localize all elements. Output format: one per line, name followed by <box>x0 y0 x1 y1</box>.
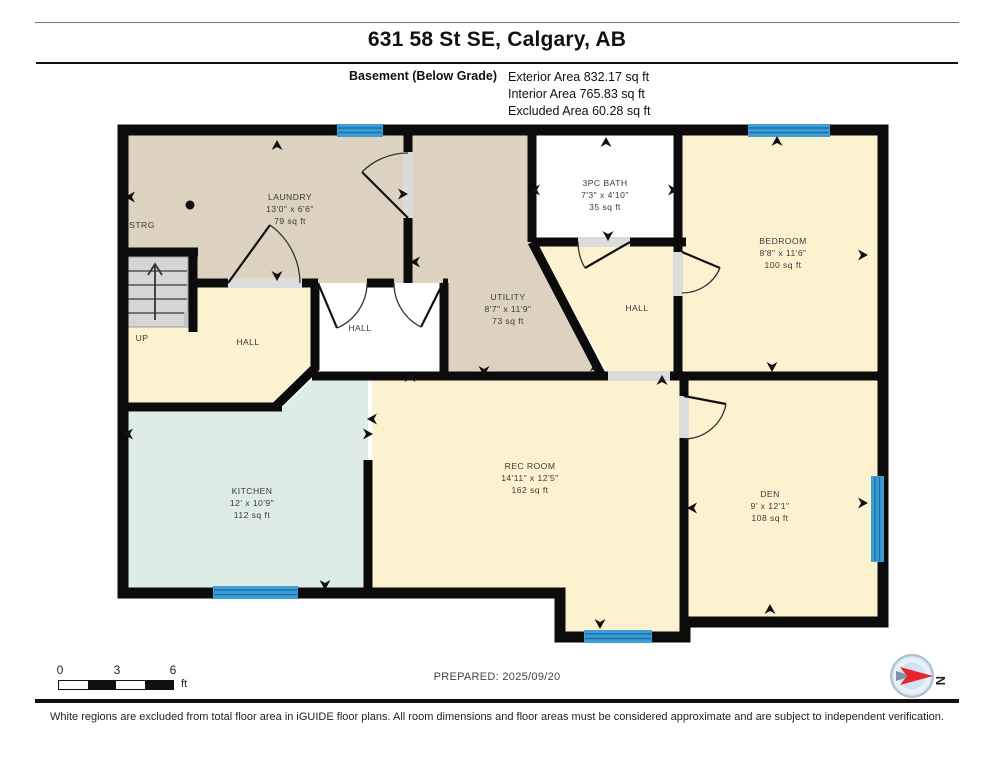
label-kitchen-dims: 12' x 10'9" <box>230 498 274 508</box>
window-bedroom <box>748 124 830 137</box>
stairs <box>123 257 194 327</box>
label-strg: STRG <box>129 220 155 230</box>
label-kitchen-name: KITCHEN <box>232 486 273 496</box>
label-hall-east: HALL <box>625 303 648 313</box>
label-kitchen-area: 112 sq ft <box>234 510 271 520</box>
label-bath-area: 35 sq ft <box>589 202 621 212</box>
room-fills <box>128 134 878 632</box>
label-utility-area: 73 sq ft <box>492 316 524 326</box>
window-den <box>871 476 884 562</box>
label-bedroom-area: 100 sq ft <box>764 260 801 270</box>
label-up: UP <box>136 333 149 343</box>
label-bath-name: 3PC BATH <box>583 178 628 188</box>
label-rec-area: 162 sq ft <box>511 485 548 495</box>
pano-dot-icon <box>186 201 195 210</box>
window-kitchen <box>213 586 298 599</box>
label-utility-name: UTILITY <box>490 292 525 302</box>
label-hall-west: HALL <box>236 337 259 347</box>
label-rec-dims: 14'11" x 12'5" <box>501 473 559 483</box>
compass-letter: N <box>933 676 948 685</box>
label-laundry-name: LAUNDRY <box>268 192 312 202</box>
compass-icon: N <box>888 652 954 702</box>
window-rec <box>584 630 652 643</box>
floor-plan: LAUNDRY 13'0" x 6'6" 79 sq ft STRG 3PC B… <box>0 0 994 768</box>
label-bedroom-name: BEDROOM <box>759 236 807 246</box>
window-laundry <box>337 124 383 137</box>
footer-divider <box>35 699 959 703</box>
label-laundry-area: 79 sq ft <box>274 216 306 226</box>
room-den <box>682 380 878 618</box>
label-den-name: DEN <box>760 489 780 499</box>
label-utility-dims: 8'7" x 11'9" <box>484 304 531 314</box>
label-hall-middle: HALL <box>348 323 371 333</box>
prepared-date: PREPARED: 2025/09/20 <box>0 671 994 683</box>
disclaimer-text: White regions are excluded from total fl… <box>0 711 994 723</box>
label-bath-dims: 7'3" x 4'10" <box>581 190 629 200</box>
label-bedroom-dims: 8'8" x 11'6" <box>759 248 806 258</box>
label-rec-name: REC ROOM <box>505 461 556 471</box>
floor-plan-page: 631 58 St SE, Calgary, AB Basement (Belo… <box>0 0 994 768</box>
label-laundry-dims: 13'0" x 6'6" <box>266 204 314 214</box>
label-den-area: 108 sq ft <box>751 513 788 523</box>
label-den-dims: 9' x 12'1" <box>750 501 789 511</box>
